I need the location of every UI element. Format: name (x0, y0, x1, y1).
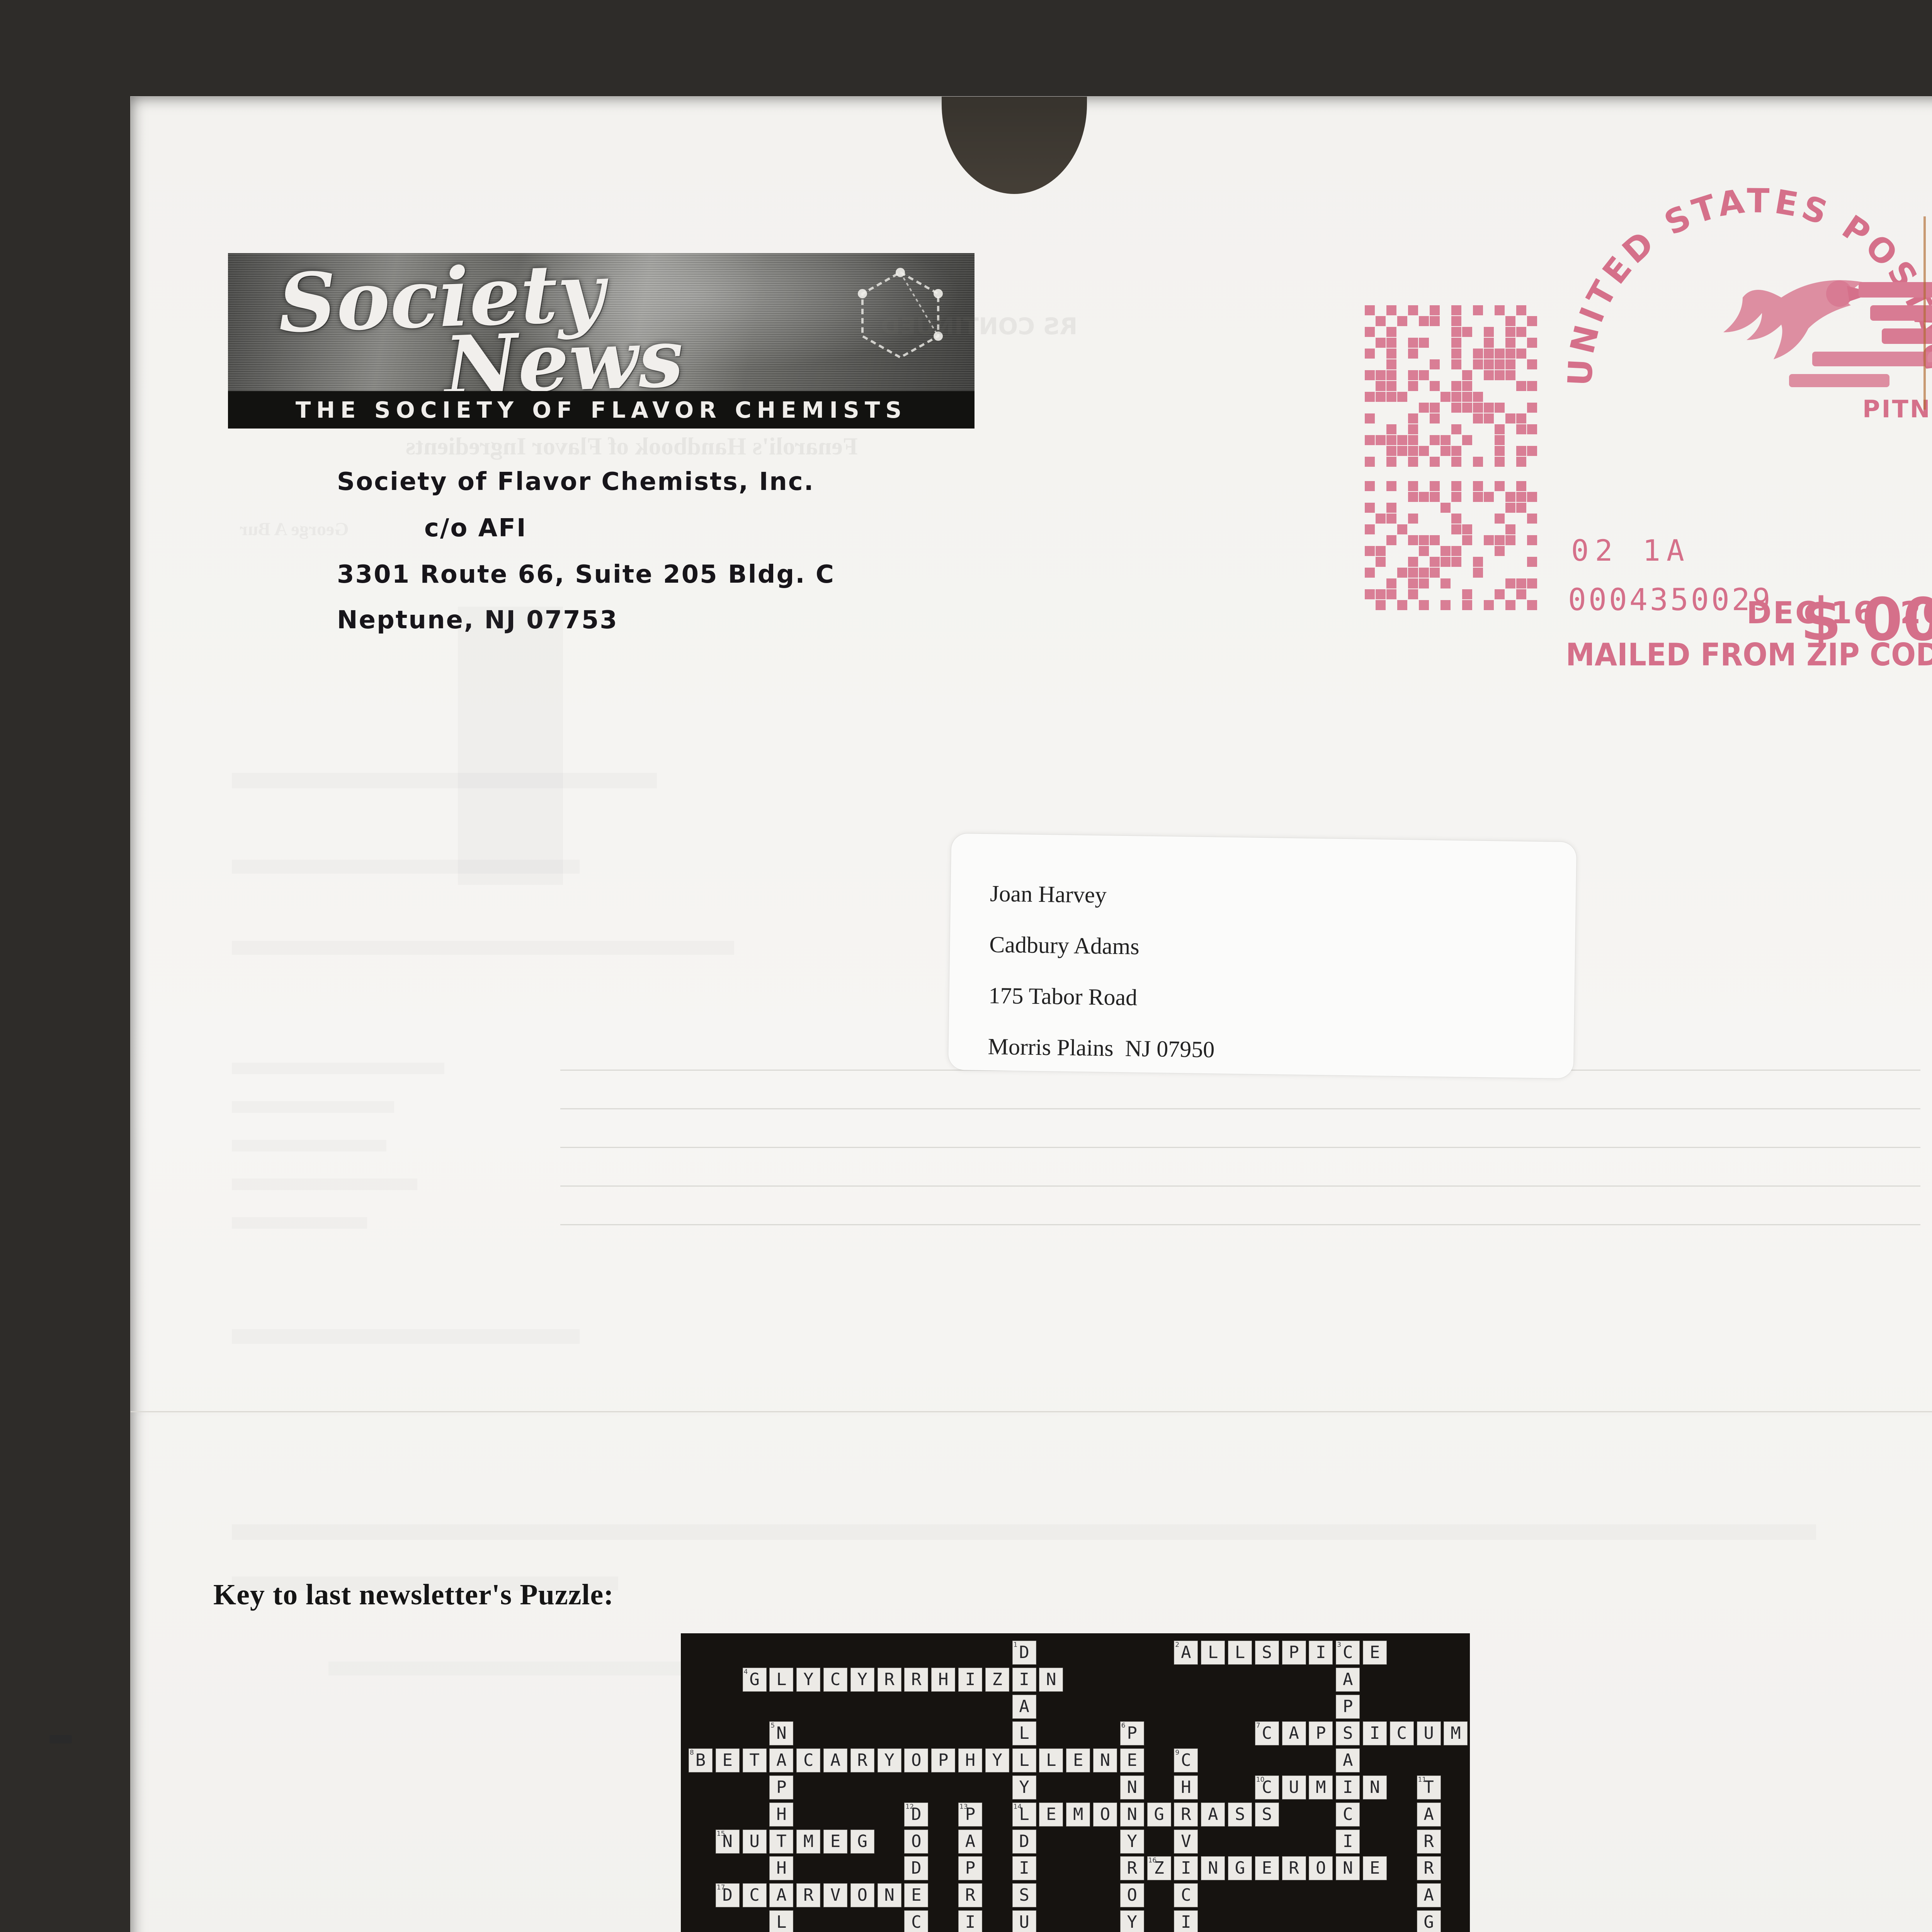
letter-tile: A (1201, 1803, 1225, 1827)
letter-tile: I (1363, 1721, 1387, 1745)
letter-tile: V (1174, 1830, 1198, 1854)
barcode-module (1516, 503, 1526, 513)
barcode-module (1527, 424, 1537, 434)
barcode-module (1484, 535, 1494, 545)
clue-number: 14 (1014, 1803, 1022, 1811)
barcode-module (1440, 503, 1451, 513)
letter-tile: P (1309, 1721, 1333, 1745)
letter-tile: A (1417, 1883, 1441, 1907)
barcode-module (1473, 492, 1483, 502)
barcode-module (1386, 457, 1396, 467)
barcode-module (1419, 535, 1429, 545)
barcode-module (1451, 492, 1461, 502)
letter-tile: O (1309, 1856, 1333, 1880)
barcode-module (1376, 589, 1386, 599)
barcode-module (1430, 413, 1440, 423)
barcode-module (1451, 524, 1461, 534)
letter-tile: A (958, 1830, 982, 1854)
logo-banner-bar: THE SOCIETY OF FLAVOR CHEMISTS (228, 391, 975, 429)
barcode-module (1376, 546, 1386, 556)
letter-tile: D12 (904, 1803, 928, 1827)
barcode-module (1451, 457, 1461, 467)
barcode-module (1430, 316, 1440, 326)
barcode-module (1451, 424, 1461, 434)
clue-number: 4 (744, 1668, 748, 1676)
clue-number: 10 (1256, 1776, 1265, 1784)
barcode-module (1527, 446, 1537, 456)
barcode-module (1440, 578, 1451, 588)
barcode-module (1462, 600, 1472, 610)
return-address-line2: c/o AFI (424, 514, 527, 543)
barcode-module (1376, 338, 1386, 348)
letter-tile: A (1336, 1748, 1360, 1772)
letter-tile: A2 (1174, 1641, 1198, 1665)
barcode-module (1451, 359, 1461, 369)
barcode-module (1505, 316, 1515, 326)
clue-number: 9 (1175, 1749, 1179, 1757)
letter-tile: H (958, 1748, 982, 1772)
barcode-module (1386, 578, 1396, 588)
letter-tile: H (769, 1803, 793, 1827)
barcode-module (1462, 370, 1472, 380)
barcode-module (1365, 305, 1375, 315)
letter-tile: Y (796, 1668, 820, 1692)
barcode-module (1495, 359, 1505, 369)
letter-tile: P (1336, 1695, 1360, 1719)
barcode-module (1386, 503, 1396, 513)
letter-tile: N5 (769, 1721, 793, 1745)
letter-tile: O (904, 1830, 928, 1854)
clue-number: 11 (1418, 1776, 1427, 1784)
barcode-module (1462, 435, 1472, 445)
barcode-module (1365, 392, 1375, 402)
barcode-module (1527, 381, 1537, 391)
letter-tile: N (1120, 1803, 1144, 1827)
barcode-module (1473, 392, 1483, 402)
letter-tile: A (823, 1748, 847, 1772)
letter-tile: G (1417, 1910, 1441, 1932)
barcode-module (1376, 392, 1386, 402)
logo-banner-text: THE SOCIETY OF FLAVOR CHEMISTS (296, 397, 907, 423)
letter-tile: L (1039, 1748, 1063, 1772)
mailed-from-zip: MAILED FROM ZIP CODE 07753 (1566, 637, 1932, 673)
barcode-module (1365, 327, 1375, 337)
letter-tile: C (904, 1910, 928, 1932)
barcode-module (1484, 600, 1494, 610)
barcode-module (1516, 446, 1526, 456)
barcode-module (1505, 492, 1515, 502)
ghost-form-label (232, 1217, 367, 1229)
barcode-module (1451, 481, 1461, 491)
barcode-module (1462, 327, 1472, 337)
letter-tile: Y (1012, 1776, 1036, 1799)
barcode-module (1505, 600, 1515, 610)
barcode-module (1505, 327, 1515, 337)
letter-tile: B8 (689, 1748, 713, 1772)
return-address-line1: Society of Flavor Chemists, Inc. (337, 468, 815, 496)
ghost-line-price (232, 860, 580, 874)
letter-tile: S (1255, 1803, 1279, 1827)
barcode-module (1440, 435, 1451, 445)
letter-tile: S (1336, 1721, 1360, 1745)
barcode-module (1484, 338, 1494, 348)
letter-tile: O (850, 1883, 874, 1907)
letter-tile: I (1174, 1910, 1198, 1932)
barcode-module (1527, 338, 1537, 348)
ghost-book-title: Fenaroli's Handbook of Flavor Ingredient… (406, 432, 858, 461)
clue-number: 5 (770, 1722, 775, 1730)
letter-tile: O (904, 1748, 928, 1772)
letter-tile: R (1417, 1856, 1441, 1880)
barcode-module (1430, 435, 1440, 445)
barcode-module (1516, 305, 1526, 315)
letter-tile: I (1336, 1776, 1360, 1799)
barcode-module (1419, 600, 1429, 610)
barcode-module (1430, 457, 1440, 467)
barcode-module (1516, 349, 1526, 359)
barcode-module (1462, 392, 1472, 402)
ghost-line-shipto (232, 941, 734, 955)
barcode-module (1386, 338, 1396, 348)
barcode-module (1430, 381, 1440, 391)
barcode-module (1365, 568, 1375, 578)
barcode-module (1430, 568, 1440, 578)
ghost-form-rule (560, 1108, 1920, 1109)
clue-number: 8 (690, 1749, 694, 1757)
letter-tile: Z16 (1147, 1856, 1171, 1880)
ghost-form-label (232, 1179, 417, 1190)
barcode-module (1495, 457, 1505, 467)
puzzle-key-heading: Key to last newsletter's Puzzle: (213, 1578, 614, 1612)
letter-tile: L (1012, 1748, 1036, 1772)
letter-tile: D (904, 1856, 928, 1880)
clue-number: 12 (905, 1803, 914, 1811)
letter-tile: T (769, 1830, 793, 1854)
recipient-company: Cadbury Adams (989, 931, 1139, 960)
barcode-module (1495, 446, 1505, 456)
barcode-module (1386, 370, 1396, 380)
barcode-module (1451, 546, 1461, 556)
barcode-module (1408, 481, 1418, 491)
ghost-form-label (232, 1140, 386, 1151)
barcode-module (1376, 600, 1386, 610)
letter-tile: R (850, 1748, 874, 1772)
barcode-module (1516, 327, 1526, 337)
letter-tile: I (958, 1910, 982, 1932)
letter-tile: Y (850, 1668, 874, 1692)
barcode-module (1430, 481, 1440, 491)
barcode-module (1451, 305, 1461, 315)
letter-tile: N15 (716, 1830, 740, 1854)
barcode-module (1451, 403, 1461, 413)
barcode-module (1408, 305, 1418, 315)
barcode-module (1495, 535, 1505, 545)
recipient-city: Morris Plains NJ 07950 (988, 1033, 1215, 1063)
ghost-line-special (232, 773, 657, 788)
barcode-module (1386, 535, 1396, 545)
barcode-module (1440, 446, 1451, 456)
barcode-module (1419, 338, 1429, 348)
letter-tile: C3 (1336, 1641, 1360, 1665)
return-address-line3: 3301 Route 66, Suite 205 Bldg. C (337, 560, 835, 589)
barcode-module (1473, 557, 1483, 567)
barcode-module (1386, 359, 1396, 369)
barcode-module (1495, 370, 1505, 380)
letter-tile: A (1336, 1668, 1360, 1692)
letter-tile: Z (985, 1668, 1009, 1692)
ghost-author-line: George A Bur (240, 519, 349, 540)
barcode-module (1516, 381, 1526, 391)
barcode-module (1451, 316, 1461, 326)
barcode-module (1484, 413, 1494, 423)
barcode-module (1462, 403, 1472, 413)
barcode-module (1462, 381, 1472, 391)
barcode-module (1440, 546, 1451, 556)
barcode-module (1408, 492, 1418, 502)
clue-number: 7 (1256, 1722, 1260, 1730)
barcode-module (1408, 338, 1418, 348)
barcode-module (1495, 349, 1505, 359)
barcode-module (1408, 568, 1418, 578)
letter-tile: E (1066, 1748, 1090, 1772)
barcode-module (1419, 446, 1429, 456)
letter-tile: R (796, 1883, 820, 1907)
barcode-module (1440, 600, 1451, 610)
barcode-module (1505, 503, 1515, 513)
letter-tile: H (769, 1856, 793, 1880)
letter-tile: N (1039, 1668, 1063, 1692)
barcode-module (1451, 381, 1461, 391)
barcode-module (1408, 381, 1418, 391)
letter-tile: R (1417, 1830, 1441, 1854)
meter-datamatrix-bottom (1365, 481, 1543, 614)
barcode-module (1365, 349, 1375, 359)
barcode-module (1505, 359, 1515, 369)
letter-tile: D (1012, 1830, 1036, 1854)
barcode-module (1365, 481, 1375, 491)
crossword-answer-key: D1IALLYL14DISULFIDEA2LLSPIC3EAPSAICING4L… (681, 1634, 1469, 1932)
clue-number: 13 (959, 1803, 968, 1811)
barcode-module (1408, 578, 1418, 588)
barcode-module (1516, 457, 1526, 467)
barcode-module (1473, 403, 1483, 413)
letter-tile: U (1012, 1910, 1036, 1932)
letter-tile: D17 (716, 1883, 740, 1907)
letter-tile: E (904, 1883, 928, 1907)
letter-tile: C (1174, 1883, 1198, 1907)
barcode-module (1430, 359, 1440, 369)
letter-tile: P (769, 1776, 793, 1799)
barcode-module (1495, 546, 1505, 556)
letter-tile: Y (878, 1748, 901, 1772)
letter-tile: N (1093, 1748, 1117, 1772)
letter-tile: P13 (958, 1803, 982, 1827)
clue-number: 17 (717, 1884, 725, 1891)
barcode-module (1365, 413, 1375, 423)
clue-number: 6 (1121, 1722, 1126, 1730)
barcode-module (1451, 514, 1461, 524)
barcode-module (1408, 446, 1418, 456)
society-news-logo: Society News (228, 253, 975, 394)
letter-tile: S (1012, 1883, 1036, 1907)
barcode-module (1365, 457, 1375, 467)
barcode-module (1386, 327, 1396, 337)
letter-tile: G (1228, 1856, 1252, 1880)
letter-tile: G (1147, 1803, 1171, 1827)
letter-tile: E (1120, 1748, 1144, 1772)
barcode-module (1397, 446, 1407, 456)
barcode-module (1495, 305, 1505, 315)
barcode-module (1419, 316, 1429, 326)
barcode-module (1473, 413, 1483, 423)
letter-tile: L (769, 1668, 793, 1692)
letter-tile: C9 (1174, 1748, 1198, 1772)
barcode-module (1516, 589, 1526, 599)
letter-tile: T (743, 1748, 767, 1772)
letter-tile: R (878, 1668, 901, 1692)
fold-crease (131, 1411, 1932, 1412)
ghost-line-credit (232, 1329, 580, 1344)
letter-tile: L (769, 1910, 793, 1932)
letter-tile: R (1282, 1856, 1306, 1880)
barcode-module (1495, 481, 1505, 491)
letter-tile: C (1390, 1721, 1414, 1745)
clue-number: 2 (1175, 1641, 1179, 1649)
letter-tile: Y (1120, 1830, 1144, 1854)
barcode-module (1386, 514, 1396, 524)
barcode-module (1516, 413, 1526, 423)
barcode-module (1408, 349, 1418, 359)
letter-tile: A (1282, 1721, 1306, 1745)
letter-tile: D1 (1012, 1641, 1036, 1665)
letter-tile: R (958, 1883, 982, 1907)
letter-tile: T11 (1417, 1776, 1441, 1799)
barcode-module (1397, 392, 1407, 402)
ghost-line-crc (232, 1524, 1816, 1540)
letter-tile: O (1120, 1883, 1144, 1907)
barcode-module (1397, 435, 1407, 445)
letter-tile: N (1120, 1776, 1144, 1799)
letter-tile: E (1039, 1803, 1063, 1827)
letter-tile: R (1120, 1856, 1144, 1880)
barcode-module (1505, 535, 1515, 545)
barcode-module (1505, 370, 1515, 380)
letter-tile: M (1309, 1776, 1333, 1799)
letter-tile: R (904, 1668, 928, 1692)
barcode-module (1376, 381, 1386, 391)
pen-mark (49, 1735, 72, 1743)
barcode-module (1505, 524, 1515, 534)
barcode-module (1408, 424, 1418, 434)
letter-tile: U (743, 1830, 767, 1854)
letter-tile: P (931, 1748, 955, 1772)
barcode-module (1365, 546, 1375, 556)
barcode-module (1505, 349, 1515, 359)
barcode-module (1484, 403, 1494, 413)
barcode-module (1397, 524, 1407, 534)
letter-tile: E (1363, 1856, 1387, 1880)
mailing-address-label: Joan Harvey Cadbury Adams 175 Tabor Road… (948, 833, 1577, 1079)
clue-number: 16 (1148, 1857, 1157, 1864)
barcode-module (1451, 392, 1461, 402)
letter-tile: E (716, 1748, 740, 1772)
barcode-module (1376, 514, 1386, 524)
barcode-module (1365, 435, 1375, 445)
letter-tile: M (796, 1830, 820, 1854)
barcode-module (1473, 568, 1483, 578)
recipient-street: 175 Tabor Road (988, 982, 1138, 1011)
barcode-module (1408, 413, 1418, 423)
barcode-module (1376, 370, 1386, 380)
letter-tile: E (1363, 1641, 1387, 1665)
barcode-module (1473, 305, 1483, 315)
barcode-module (1408, 514, 1418, 524)
barcode-module (1495, 514, 1505, 524)
barcode-module (1451, 446, 1461, 456)
letter-tile: R (1174, 1803, 1198, 1827)
letter-tile: A (1012, 1695, 1036, 1719)
letter-tile: C (743, 1883, 767, 1907)
barcode-module (1365, 589, 1375, 599)
letter-tile: G4 (743, 1668, 767, 1692)
letter-tile: U (1417, 1721, 1441, 1745)
barcode-module (1451, 557, 1461, 567)
letter-tile: H (1174, 1776, 1198, 1799)
barcode-module (1408, 370, 1418, 380)
letter-tile: C (1336, 1803, 1360, 1827)
letter-tile: S (1255, 1641, 1279, 1665)
barcode-module (1484, 359, 1494, 369)
barcode-module (1397, 316, 1407, 326)
barcode-module (1430, 305, 1440, 315)
barcode-module (1397, 568, 1407, 578)
barcode-module (1419, 403, 1429, 413)
barcode-module (1473, 481, 1483, 491)
barcode-module (1516, 424, 1526, 434)
barcode-module (1376, 435, 1386, 445)
barcode-module (1408, 457, 1418, 467)
barcode-module (1386, 349, 1396, 359)
barcode-module (1376, 557, 1386, 567)
letter-tile: C (823, 1668, 847, 1692)
letter-tile: Y (1120, 1910, 1144, 1932)
barcode-module (1419, 370, 1429, 380)
barcode-module (1408, 435, 1418, 445)
letter-tile: A (769, 1883, 793, 1907)
logo-word-news: News (443, 311, 685, 394)
letter-tile: U (1282, 1776, 1306, 1799)
ghost-book-cover (458, 607, 563, 885)
letter-tile: N (1336, 1856, 1360, 1880)
barcode-module (1527, 514, 1537, 524)
barcode-module (1419, 546, 1429, 556)
rust-streak-artifact (1923, 216, 1926, 410)
ghost-form-rule (560, 1147, 1920, 1148)
barcode-module (1430, 557, 1440, 567)
barcode-module (1408, 535, 1418, 545)
letter-tile: P (1282, 1641, 1306, 1665)
barcode-module (1527, 578, 1537, 588)
barcode-module (1386, 424, 1396, 434)
pitney-bowes-label: PITNEY BOWES (1862, 395, 1932, 423)
barcode-module (1430, 403, 1440, 413)
scanned-mail-page: Society News THE SOCIETY OF FLAVOR CHEMI… (0, 0, 1932, 1932)
barcode-module (1473, 349, 1483, 359)
barcode-module (1430, 535, 1440, 545)
letter-tile: A (1417, 1803, 1441, 1827)
postage-meter-indicia: UNITED STATES POSTAGE PITNEY BOWES (1542, 170, 1932, 487)
letter-tile: O (1093, 1803, 1117, 1827)
